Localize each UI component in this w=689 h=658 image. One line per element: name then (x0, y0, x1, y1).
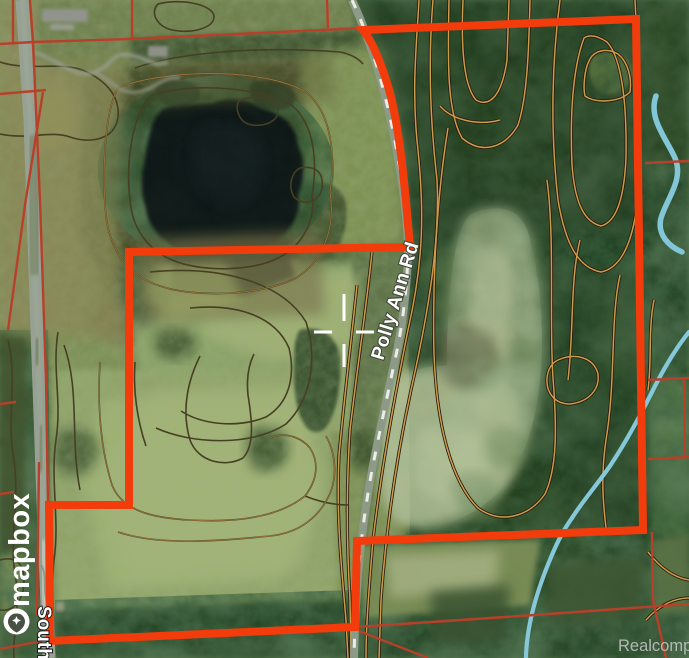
svg-text:Realcomp: Realcomp (618, 637, 689, 655)
svg-text:Southlan: Southlan (33, 606, 54, 658)
svg-text:mapbox: mapbox (4, 493, 36, 607)
